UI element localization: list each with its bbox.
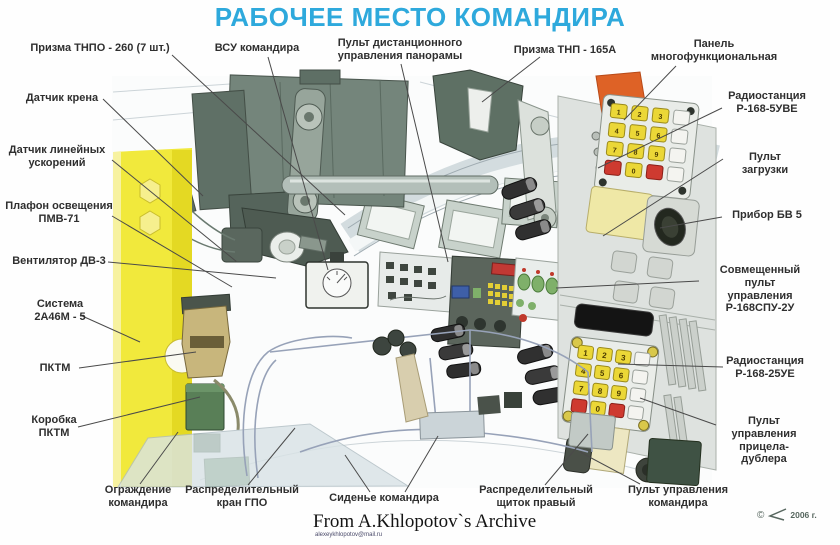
keypad-key <box>627 405 643 420</box>
archive-credit: From A.Khlopotov`s Archive <box>313 511 536 533</box>
right-equipment-panel: 1234567890 <box>558 72 716 486</box>
copyright-block: © 2006 г. <box>757 507 817 523</box>
keypad-key <box>630 388 646 403</box>
keypad-key <box>669 148 686 164</box>
traverse-tube <box>282 176 498 194</box>
illustration: 1234567890 <box>0 0 840 545</box>
keypad-key <box>646 164 663 180</box>
poster: РАБОЧЕЕ МЕСТО КОМАНДИРА <box>0 0 840 545</box>
console-screen <box>452 286 469 298</box>
archive-email: alexeykhlopotov@mail.ru <box>315 532 382 538</box>
keypad-key <box>673 110 690 126</box>
keypad-key <box>604 160 621 176</box>
copyright-year: 2006 г. <box>790 510 816 520</box>
keypad-key <box>571 399 587 414</box>
loading-console-pad <box>586 186 654 240</box>
chevron-logo-icon <box>766 507 788 523</box>
copyright-symbol: © <box>757 510 764 521</box>
keypad-key <box>632 370 648 385</box>
keypad-key <box>667 167 684 183</box>
commander-console-box <box>647 438 702 486</box>
